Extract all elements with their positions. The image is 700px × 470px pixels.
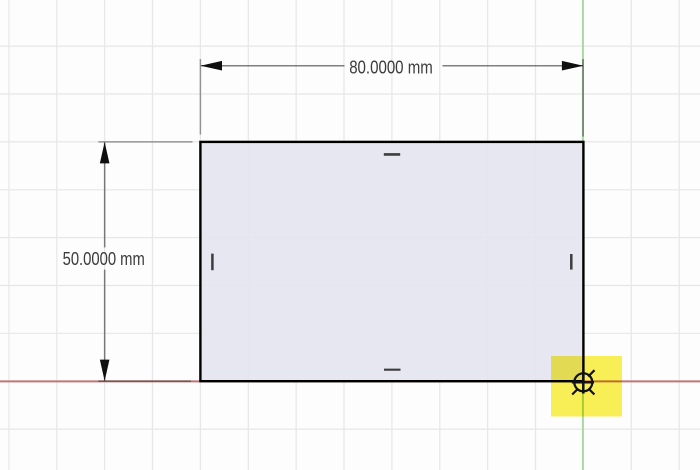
svg-text:50.0000 mm: 50.0000 mm [63, 248, 145, 269]
svg-text:80.0000 mm: 80.0000 mm [349, 56, 433, 77]
